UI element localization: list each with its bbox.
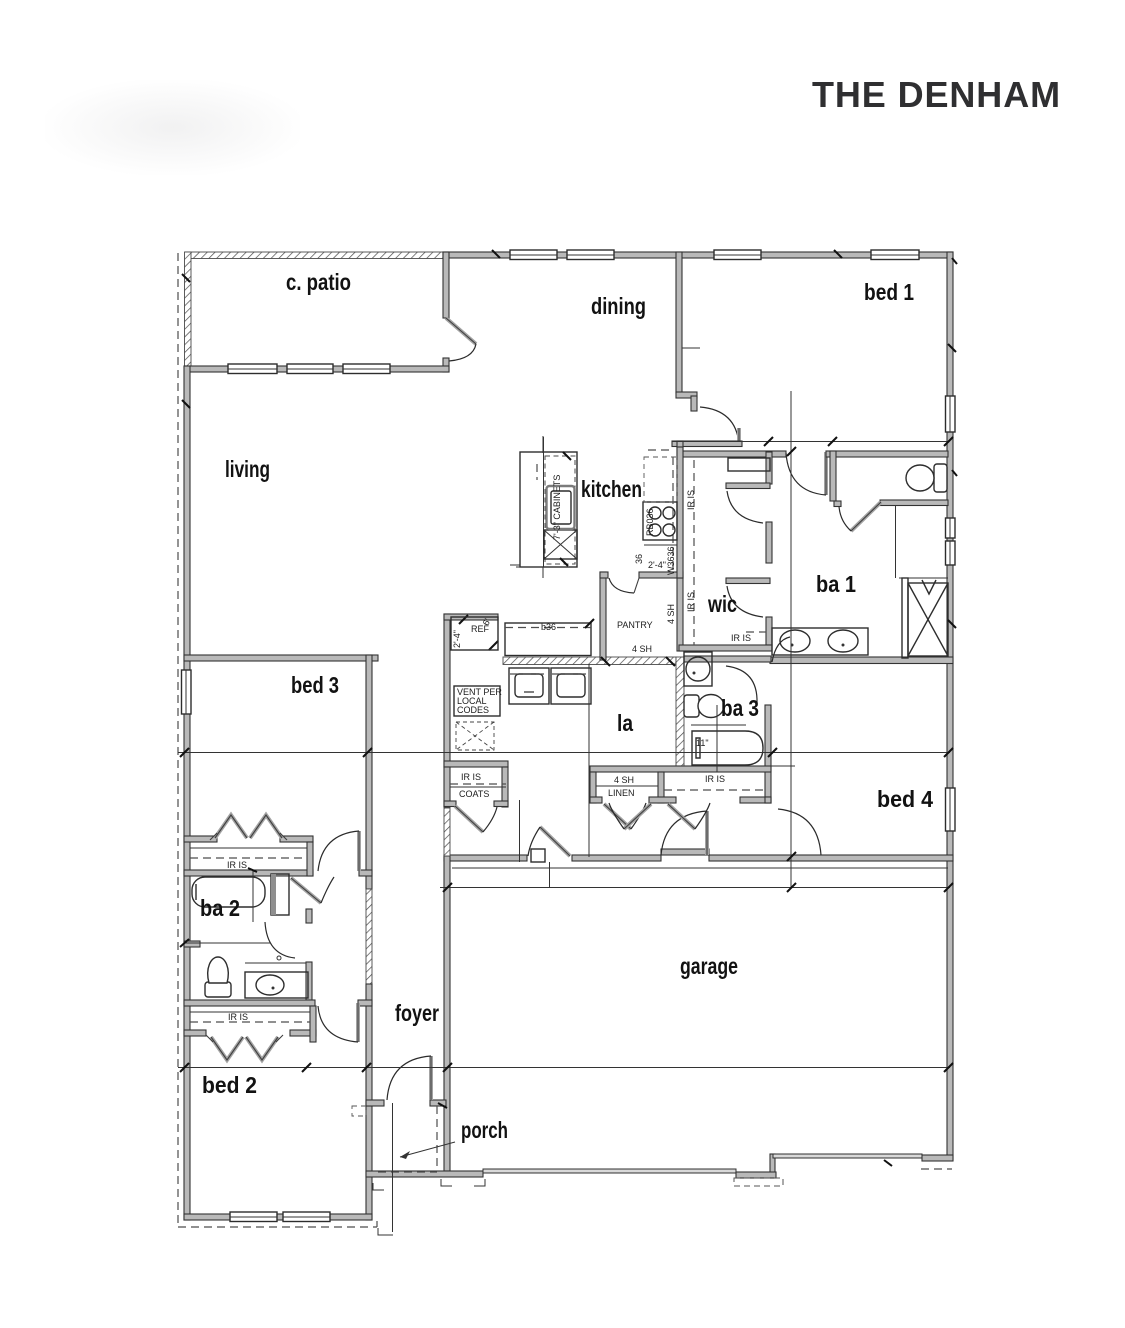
svg-text:7'-3" CABINETS: 7'-3" CABINETS: [552, 475, 562, 540]
svg-text:IR IS: IR IS: [461, 772, 481, 782]
svg-text:bed 3: bed 3: [291, 672, 339, 698]
svg-text:porch: porch: [461, 1117, 508, 1143]
svg-text:36: 36: [634, 554, 644, 564]
svg-text:living: living: [225, 456, 270, 482]
svg-text:foyer: foyer: [395, 1000, 439, 1026]
svg-text:LINEN: LINEN: [608, 788, 635, 798]
svg-text:bed 2: bed 2: [202, 1072, 257, 1098]
svg-text:ba 3: ba 3: [721, 695, 759, 721]
svg-text:2'-4": 2'-4": [452, 630, 462, 648]
svg-text:IR IS: IR IS: [228, 1012, 248, 1022]
svg-text:c. patio: c. patio: [286, 269, 351, 295]
svg-text:4 SH: 4 SH: [666, 604, 676, 624]
svg-text:IR IS: IR IS: [731, 633, 751, 643]
svg-text:wic: wic: [707, 591, 737, 617]
svg-text:COATS: COATS: [459, 789, 489, 799]
svg-text:kitchen: kitchen: [581, 476, 642, 502]
svg-text:ba 1: ba 1: [816, 571, 856, 597]
svg-text:bed 1: bed 1: [864, 279, 914, 305]
svg-text:IR IS: IR IS: [227, 860, 247, 870]
svg-text:11": 11": [696, 738, 709, 748]
svg-text:bed 4: bed 4: [877, 786, 933, 812]
svg-text:la: la: [617, 710, 633, 736]
svg-text:4 SH: 4 SH: [632, 644, 652, 654]
svg-text:CODES: CODES: [457, 705, 489, 715]
svg-text:IR IS: IR IS: [686, 592, 696, 612]
svg-text:garage: garage: [680, 953, 738, 979]
svg-text:2'-4": 2'-4": [648, 560, 666, 570]
svg-text:ba 2: ba 2: [200, 895, 240, 921]
svg-text:IR IS: IR IS: [705, 774, 725, 784]
svg-text:RB036: RB036: [645, 508, 655, 536]
svg-text:PANTRY: PANTRY: [617, 620, 653, 630]
svg-text:W3636: W3636: [666, 546, 676, 575]
svg-text:dining: dining: [591, 293, 646, 319]
svg-text:IR IS: IR IS: [686, 490, 696, 510]
svg-text:b36: b36: [541, 622, 556, 632]
svg-text:4 SH: 4 SH: [614, 775, 634, 785]
